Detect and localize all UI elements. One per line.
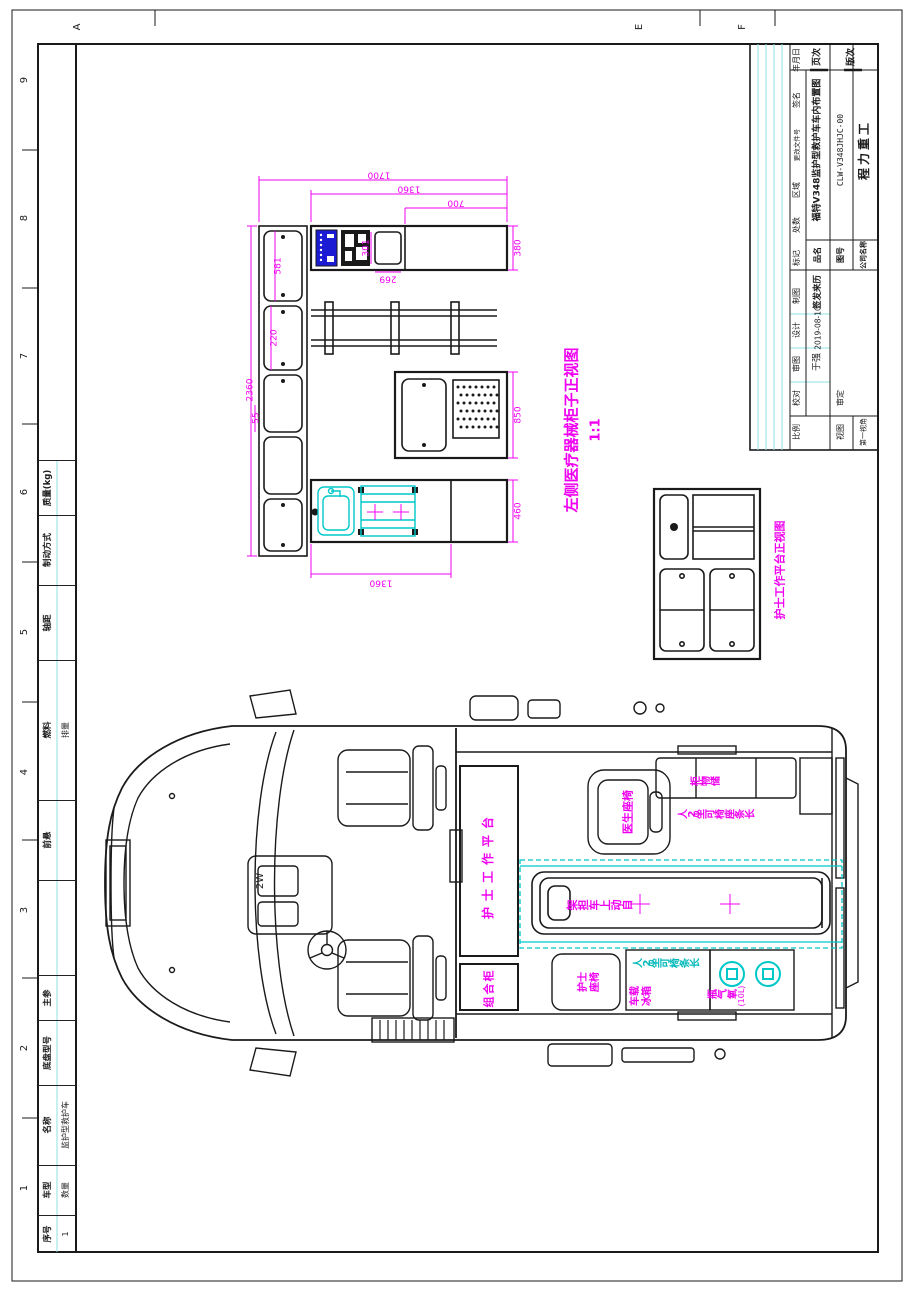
spec-row-label: 前悬 (44, 831, 53, 848)
spec-row-label: 制动方式 (44, 533, 53, 567)
label-oxygen-capacity: (10L) (738, 986, 746, 1007)
ambulance-plan-drawing (80, 688, 870, 1078)
grid-row-ref: 3 (20, 907, 30, 913)
spec-row-divider (38, 1215, 76, 1216)
role-designer: 设计 (793, 322, 801, 338)
spec-row-divider (38, 800, 76, 801)
company-name: 程力重工 (858, 120, 870, 180)
cad-sheet: 987654321AEF 质量(kg)制动方式轴距燃料排量前悬主参底盘型号名称监… (0, 0, 914, 1291)
label-gear: 2W (256, 873, 266, 889)
spec-row-divider (38, 515, 76, 516)
dim-301: 301 (363, 239, 372, 256)
cabinet-elevation-drawing (245, 160, 545, 600)
dim-380: 380 (515, 239, 524, 256)
page-label: 页次 (814, 48, 823, 66)
dim-269: 269 (379, 274, 396, 283)
spec-row-divider (38, 880, 76, 881)
rev-header-file: 更改文件号 (794, 129, 801, 162)
spec-row-value: 1 (62, 1231, 70, 1236)
dim-1360-top: 1360 (398, 184, 421, 193)
spec-row-label: 燃料 (44, 721, 53, 738)
dim-850: 850 (515, 406, 524, 423)
stretcher-center-marks (630, 894, 740, 914)
dim-460: 460 (515, 502, 524, 519)
dimension-lines (247, 176, 518, 578)
dim-220: 220 (271, 329, 280, 346)
role-drafter: 制图 (793, 288, 801, 304)
rev-label: 版次 (848, 48, 857, 66)
label-combo-cabinet: 组合柜 (484, 969, 495, 1008)
oxygen-bottles (720, 962, 780, 986)
vent-grille (457, 386, 499, 429)
date-value: 2019-08-10 (814, 306, 822, 350)
label-doctor-seat: 医生座椅 (623, 790, 634, 834)
grid-row-ref: 2 (20, 1045, 30, 1051)
spec-row-label: 质量(kg) (44, 469, 53, 506)
right-mirror (250, 1048, 296, 1076)
rev-header-sign: 签名 (793, 92, 801, 108)
role-checker: 审图 (793, 356, 801, 372)
grid-row-ref: 4 (20, 769, 30, 775)
spec-row-divider (38, 585, 76, 586)
dim-1700: 1700 (368, 170, 391, 179)
spec-row-label: 轴距 (44, 614, 53, 631)
sink-and-seat-cyan (318, 486, 415, 536)
spec-row-value: 排量 (62, 722, 70, 738)
spec-row-label: 序号 (44, 1225, 53, 1242)
label-fridge-line2: 冰箱 (643, 986, 653, 1006)
sign-title: 签发来历 (814, 275, 823, 309)
dim-1360-bottom: 1360 (370, 578, 393, 587)
scale-label: 比例 (793, 424, 801, 440)
spec-row-divider (38, 1165, 76, 1166)
spec-row-value: 数量 (62, 1182, 70, 1198)
projection-angle-label: 第一视角 (861, 418, 868, 446)
left-mirror (250, 690, 296, 718)
spec-row-divider (38, 1020, 76, 1021)
dim-581: 581 (275, 257, 284, 274)
label-fridge-line1: 车载 (631, 986, 641, 1006)
dim-55: 55 (253, 412, 262, 423)
nurse-platform-drawing (650, 483, 770, 668)
view-label: 视图 (837, 424, 845, 440)
designer-name: 于强 (814, 353, 823, 371)
dim-2360: 2360 (247, 379, 256, 402)
grid-row-ref: 6 (20, 489, 30, 495)
cabinet-view-title: 左侧医疗器械柜子正视图 (565, 347, 580, 512)
grid-row-ref: 1 (20, 1185, 30, 1191)
spec-row-divider (38, 660, 76, 661)
side-step (372, 1018, 454, 1042)
company-label: 公司名称 (861, 241, 868, 269)
label-nurse-seat-line1: 护士 (579, 972, 589, 992)
product-name-label: 品名 (814, 247, 822, 263)
bench-outline (656, 758, 796, 798)
step-hatch-lines (380, 1020, 444, 1040)
product-name: 福特V348监护型救护车车内布置图 (814, 79, 823, 222)
label-stretcher: 架担车上动自 (567, 900, 633, 911)
spec-row-divider (38, 1085, 76, 1086)
grid-row-ref: 7 (20, 353, 30, 359)
grid-col-ref: A (73, 24, 83, 31)
spec-row-divider (38, 460, 76, 461)
label-bench-long: 人2坐可椅座条长 (680, 809, 757, 819)
drawing-no-label: 图号 (837, 247, 845, 263)
spec-row-label: 名称 (44, 1116, 53, 1133)
rev-header-count: 处数 (793, 217, 801, 233)
label-storage-cabinet: 柜物储 (692, 776, 722, 786)
spec-row-label: 主参 (44, 989, 53, 1006)
drawing-number: CLW-V348JHJC-00 (837, 114, 845, 186)
role-proofer: 校对 (793, 390, 801, 406)
grid-row-ref: 5 (20, 629, 30, 635)
rev-header-mark: 标记 (793, 250, 801, 266)
spec-row-value: 监护型救护车 (62, 1101, 70, 1149)
spec-row-label: 底盘型号 (44, 1035, 53, 1069)
spec-row-label: 车型 (44, 1181, 53, 1198)
grid-col-ref: E (635, 24, 645, 30)
label-bench-cyan: 人2坐可椅条长 (635, 958, 702, 968)
seat-center-marks (367, 504, 409, 520)
nurse-view-title: 护士工作平台正视图 (775, 521, 786, 620)
role-approver: 审定 (837, 390, 845, 406)
grid-row-ref: 9 (20, 77, 30, 83)
rev-header-zone: 区域 (793, 182, 801, 198)
label-oxygen: 瓶气氧 (709, 989, 739, 999)
dim-700: 700 (447, 198, 464, 207)
cabinet-view-scale: 1:1 (590, 418, 603, 441)
cabinet-knob (670, 523, 678, 531)
label-nurse-seat-line2: 座椅 (591, 972, 601, 992)
electrical-panel (316, 230, 337, 266)
grid-row-ref: 8 (20, 215, 30, 221)
spec-row-divider (38, 975, 76, 976)
label-nurse-platform: 护士工作平台 (482, 811, 494, 919)
rev-header-date: 年月日 (793, 48, 801, 72)
grid-col-ref: F (738, 24, 748, 30)
